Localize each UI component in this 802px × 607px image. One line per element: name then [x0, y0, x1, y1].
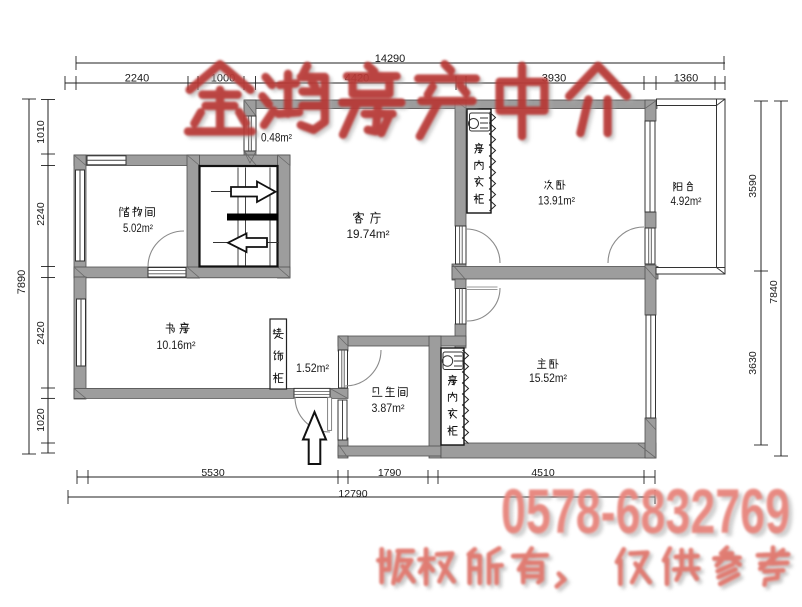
svg-text:1790: 1790 [378, 467, 402, 479]
svg-text:4.92m²: 4.92m² [671, 196, 702, 208]
svg-text:7890: 7890 [16, 270, 28, 294]
svg-text:1010: 1010 [35, 120, 47, 144]
svg-text:15.52m²: 15.52m² [529, 373, 567, 385]
svg-text:7840: 7840 [768, 280, 780, 304]
svg-text:19.74m²: 19.74m² [347, 229, 390, 241]
svg-text:0578-6832769: 0578-6832769 [501, 477, 790, 547]
svg-text:5530: 5530 [201, 467, 225, 479]
svg-text:3630: 3630 [747, 351, 759, 375]
svg-text:12790: 12790 [338, 488, 367, 500]
svg-text:2240: 2240 [125, 73, 149, 85]
svg-text:1360: 1360 [674, 73, 698, 85]
svg-text:13.91m²: 13.91m² [538, 196, 575, 208]
svg-text:5.02m²: 5.02m² [123, 223, 153, 235]
svg-text:14290: 14290 [375, 53, 406, 65]
svg-text:3.87m²: 3.87m² [372, 403, 405, 415]
svg-text:1020: 1020 [35, 408, 47, 432]
svg-text:1.52m²: 1.52m² [296, 363, 329, 375]
svg-text:10.16m²: 10.16m² [157, 340, 196, 352]
svg-text:2420: 2420 [35, 321, 47, 345]
svg-text:3590: 3590 [747, 174, 759, 198]
svg-text:0.48m²: 0.48m² [261, 133, 292, 145]
svg-text:2240: 2240 [35, 202, 47, 226]
